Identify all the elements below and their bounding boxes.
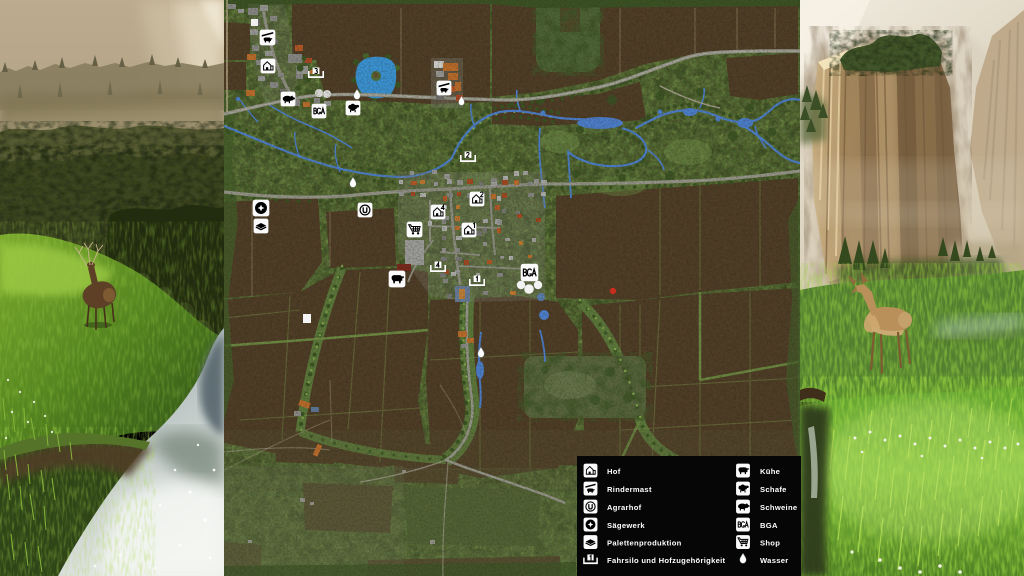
svg-text:Wasser: Wasser (760, 556, 789, 565)
svg-text:BGA: BGA (760, 521, 778, 530)
svg-text:Fahrsilo und Hofzugehörigkeit: Fahrsilo und Hofzugehörigkeit (607, 556, 726, 565)
svg-text:Sägewerk: Sägewerk (607, 521, 645, 530)
svg-text:Kühe: Kühe (760, 467, 780, 476)
svg-text:Agrarhof: Agrarhof (607, 503, 642, 512)
svg-text:Palettenproduktion: Palettenproduktion (607, 538, 682, 547)
svg-text:Schafe: Schafe (760, 485, 787, 494)
svg-text:Rindermast: Rindermast (607, 485, 652, 494)
svg-text:Shop: Shop (760, 538, 780, 547)
svg-text:Schweine: Schweine (760, 503, 797, 512)
svg-text:Hof: Hof (607, 467, 621, 476)
